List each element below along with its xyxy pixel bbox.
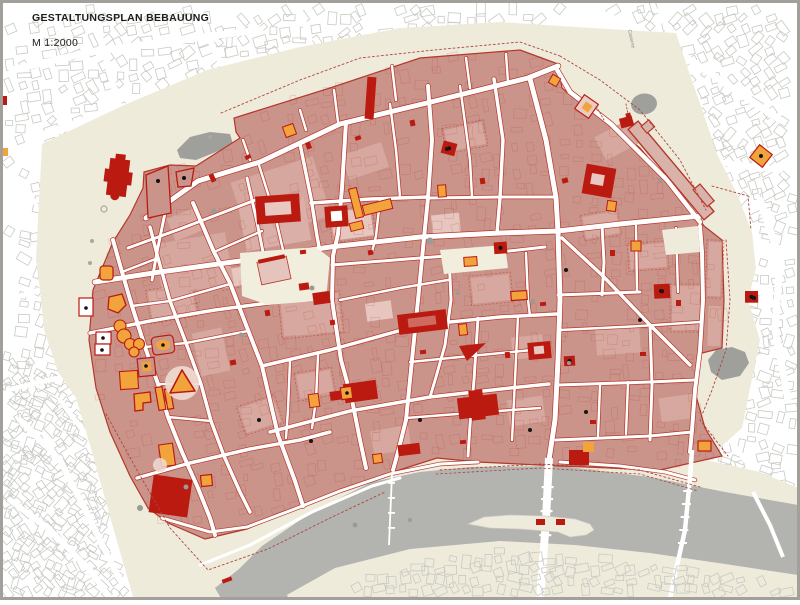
svg-text:GESTALTUNGSPLAN BEBAUUNG: GESTALTUNGSPLAN BEBAUUNG	[32, 12, 209, 24]
svg-text:M 1:2000: M 1:2000	[32, 37, 78, 49]
